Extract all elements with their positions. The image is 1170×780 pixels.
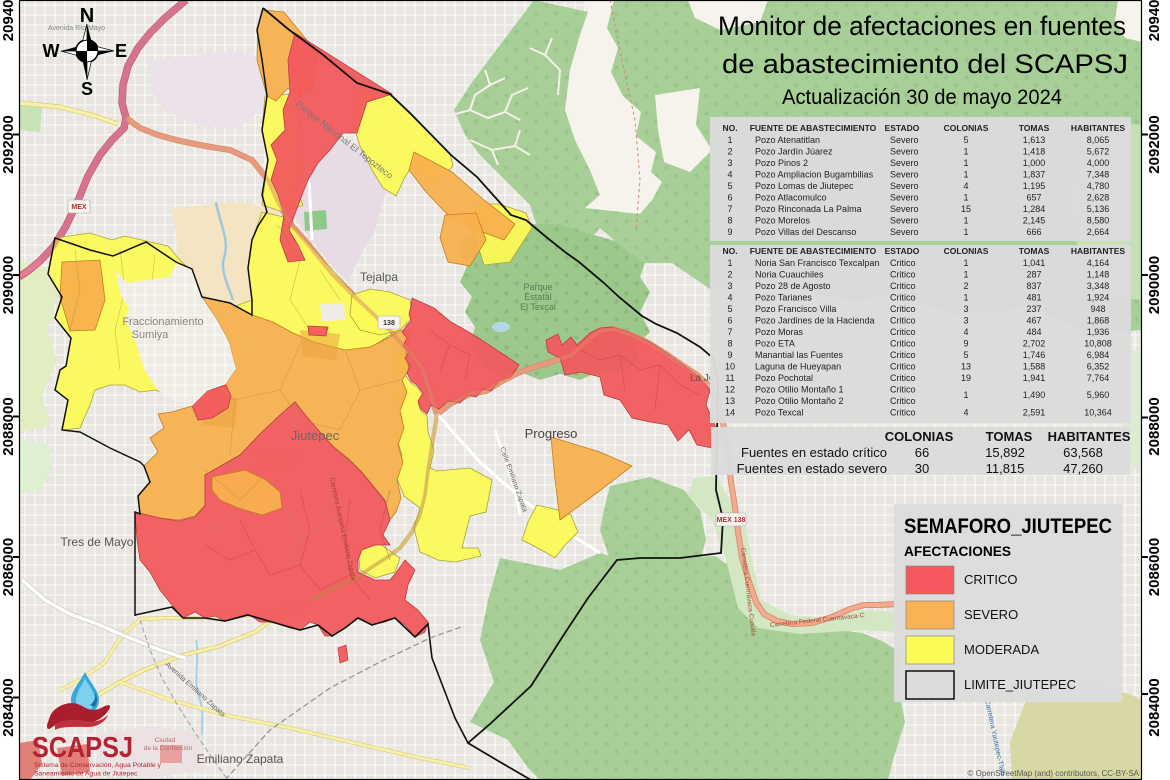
svg-text:2094000: 2094000 [1146,0,1163,41]
svg-text:657: 657 [1026,193,1041,203]
svg-text:Pozo ETA: Pozo ETA [755,339,795,349]
svg-text:Actualización 30 de mayo 2024: Actualización 30 de mayo 2024 [782,86,1062,109]
svg-text:COLONIAS: COLONIAS [944,123,989,133]
svg-text:Pozo Jardín Júarez: Pozo Jardín Júarez [755,147,833,157]
svg-text:4,164: 4,164 [1087,258,1110,268]
svg-text:Parque: Parque [523,282,552,292]
svg-text:Tejalpa: Tejalpa [360,270,398,284]
svg-text:ESTADO: ESTADO [885,123,920,133]
svg-text:2,591: 2,591 [1023,408,1046,418]
svg-text:FUENTE DE ABASTECIMIENTO: FUENTE DE ABASTECIMIENTO [750,246,877,256]
svg-text:1,490: 1,490 [1023,390,1046,400]
svg-text:2,628: 2,628 [1087,193,1110,203]
svg-text:1,837: 1,837 [1023,170,1046,180]
svg-text:COLONIAS: COLONIAS [944,246,989,256]
svg-text:CRITICO: CRITICO [964,572,1017,587]
svg-text:Progreso: Progreso [525,426,578,441]
svg-text:2086000: 2086000 [1146,538,1163,596]
svg-text:W: W [43,41,60,61]
svg-text:Critico: Critico [890,281,916,291]
svg-text:Critico: Critico [890,258,916,268]
svg-text:Sistema de Conservación, Agua: Sistema de Conservación, Agua Potable y [34,762,162,769]
svg-text:Pozo Rinconada La Palma: Pozo Rinconada La Palma [755,204,862,214]
svg-text:2: 2 [963,281,968,291]
svg-text:de la Confección: de la Confección [144,745,193,752]
svg-text:15,892: 15,892 [985,445,1025,460]
svg-text:5: 5 [727,304,732,314]
svg-text:Critico: Critico [890,316,916,326]
svg-text:Pozo Francisco Villa: Pozo Francisco Villa [755,304,836,314]
svg-text:837: 837 [1026,281,1041,291]
svg-text:948: 948 [1090,304,1105,314]
svg-text:Pozo Texcal: Pozo Texcal [755,408,803,418]
svg-text:2,702: 2,702 [1023,339,1046,349]
svg-text:COLONIAS: COLONIAS [885,429,954,444]
svg-text:Critico: Critico [890,350,916,360]
svg-text:4,780: 4,780 [1087,181,1110,191]
svg-text:237: 237 [1026,304,1041,314]
svg-text:MODERADA: MODERADA [964,642,1039,657]
svg-text:1: 1 [963,258,968,268]
svg-text:Critico: Critico [890,293,916,303]
svg-text:Severo: Severo [890,170,919,180]
svg-text:Severo: Severo [890,216,919,226]
svg-text:MEX 138: MEX 138 [717,517,746,524]
svg-text:Pozo Otilio Montaño 2: Pozo Otilio Montaño 2 [755,396,844,406]
svg-text:Sumiya: Sumiya [132,329,170,341]
svg-text:4: 4 [963,408,968,418]
svg-text:2084000: 2084000 [0,678,17,736]
svg-text:NO.: NO. [722,123,737,133]
svg-text:6,352: 6,352 [1087,362,1110,372]
svg-text:12: 12 [725,385,735,395]
svg-text:S: S [81,79,93,99]
svg-text:484: 484 [1026,327,1041,337]
svg-text:AFECTACIONES: AFECTACIONES [904,544,1011,559]
svg-text:MEX: MEX [71,204,87,211]
svg-text:1: 1 [963,158,968,168]
svg-text:Estatal: Estatal [524,292,552,302]
svg-text:HABITANTES: HABITANTES [1071,246,1125,256]
svg-text:8,580: 8,580 [1087,216,1110,226]
svg-text:Avenida Río Mayo: Avenida Río Mayo [48,25,105,32]
svg-text:Severo: Severo [890,158,919,168]
svg-text:287: 287 [1026,270,1041,280]
svg-text:3: 3 [963,316,968,326]
svg-text:47,260: 47,260 [1063,461,1103,476]
svg-text:Ciudad: Ciudad [155,737,176,744]
svg-text:2: 2 [727,147,732,157]
svg-text:2,145: 2,145 [1023,216,1046,226]
svg-text:5,136: 5,136 [1087,204,1110,214]
svg-text:13: 13 [961,362,971,372]
svg-text:HABITANTES: HABITANTES [1048,429,1131,444]
svg-text:Manantial las Fuentes: Manantial las Fuentes [755,350,844,360]
svg-text:Severo: Severo [890,193,919,203]
svg-text:63,568: 63,568 [1063,445,1103,460]
svg-text:1,936: 1,936 [1087,327,1110,337]
svg-text:10,808: 10,808 [1084,339,1112,349]
svg-text:5: 5 [963,135,968,145]
svg-text:1: 1 [963,170,968,180]
svg-text:Critico: Critico [890,385,916,395]
svg-text:1: 1 [963,216,968,226]
svg-text:7,764: 7,764 [1087,373,1110,383]
svg-text:10,364: 10,364 [1084,408,1112,418]
svg-text:Pozo Pinos 2: Pozo Pinos 2 [755,158,808,168]
svg-text:8: 8 [727,339,732,349]
svg-text:2094000: 2094000 [0,0,17,41]
svg-text:2092000: 2092000 [0,115,17,173]
svg-text:6,984: 6,984 [1087,350,1110,360]
svg-text:4,000: 4,000 [1087,158,1110,168]
svg-text:El Texcal: El Texcal [520,302,556,312]
svg-text:5: 5 [963,350,968,360]
svg-text:Monitor de afectaciones en fue: Monitor de afectaciones en fuentes [718,11,1126,41]
svg-text:3: 3 [963,304,968,314]
svg-text:Severo: Severo [890,227,919,237]
svg-text:Critico: Critico [890,362,916,372]
svg-text:138: 138 [383,320,395,327]
svg-text:3,348: 3,348 [1087,281,1110,291]
svg-text:1: 1 [963,270,968,280]
svg-text:3: 3 [727,281,732,291]
svg-text:Pozo Lomas de Jiutepec: Pozo Lomas de Jiutepec [755,181,854,191]
svg-text:Severo: Severo [890,147,919,157]
svg-text:FUENTE DE ABASTECIMIENTO: FUENTE DE ABASTECIMIENTO [750,123,877,133]
svg-text:4: 4 [963,327,968,337]
svg-text:E: E [115,41,127,61]
svg-text:ESTADO: ESTADO [885,246,920,256]
svg-text:Saneamiento de Agua de Jiutepe: Saneamiento de Agua de Jiutepec [34,771,138,778]
svg-text:1: 1 [963,293,968,303]
svg-text:Pozo Ampliacion Bugambilias: Pozo Ampliacion Bugambilias [755,170,874,180]
svg-text:Pozo Atenatitlan: Pozo Atenatitlan [755,135,820,145]
svg-text:1,746: 1,746 [1023,350,1046,360]
svg-text:2086000: 2086000 [0,538,17,596]
svg-text:de abastecimiento del SCAPSJ: de abastecimiento del SCAPSJ [722,49,1128,79]
svg-text:Pozo Morelos: Pozo Morelos [755,216,811,226]
svg-text:Jiutepec: Jiutepec [291,428,340,443]
svg-text:66: 66 [915,445,929,460]
svg-text:NO.: NO. [722,246,737,256]
svg-text:666: 666 [1026,227,1041,237]
svg-text:Critico: Critico [890,327,916,337]
svg-text:Noria Cuauchiles: Noria Cuauchiles [755,270,824,280]
svg-text:9: 9 [727,227,732,237]
svg-text:1,588: 1,588 [1023,362,1046,372]
svg-text:11,815: 11,815 [986,461,1025,476]
svg-text:9: 9 [963,339,968,349]
svg-text:5: 5 [727,181,732,191]
svg-text:Tres de Mayo: Tres de Mayo [61,535,134,549]
svg-text:1,148: 1,148 [1087,270,1110,280]
svg-text:Pozo Moras: Pozo Moras [755,327,804,337]
svg-text:1: 1 [727,135,732,145]
svg-text:7,348: 7,348 [1087,170,1110,180]
svg-text:Pozo Jardines de la Hacienda: Pozo Jardines de la Hacienda [755,316,875,326]
svg-text:Pozo Atlacomulco: Pozo Atlacomulco [755,193,827,203]
svg-text:14: 14 [725,408,735,418]
svg-text:19: 19 [961,373,971,383]
svg-text:1,000: 1,000 [1023,158,1046,168]
svg-text:Severo: Severo [890,204,919,214]
svg-text:6: 6 [727,193,732,203]
svg-text:2092000: 2092000 [1146,115,1163,173]
svg-text:7: 7 [727,327,732,337]
svg-text:LIMITE_JIUTEPEC: LIMITE_JIUTEPEC [964,677,1076,692]
svg-text:5,960: 5,960 [1087,390,1110,400]
svg-text:1,941: 1,941 [1023,373,1046,383]
svg-text:7: 7 [727,204,732,214]
svg-text:Laguna de Hueyapan: Laguna de Hueyapan [755,362,841,372]
svg-text:Pozo 28 de Agosto: Pozo 28 de Agosto [755,281,831,291]
svg-text:SEVERO: SEVERO [964,607,1018,622]
svg-text:SEMAFORO_JIUTEPEC: SEMAFORO_JIUTEPEC [904,515,1112,538]
svg-text:4: 4 [727,170,732,180]
svg-text:1: 1 [963,390,968,400]
svg-text:481: 481 [1026,293,1041,303]
svg-text:SCAPSJ: SCAPSJ [32,732,133,764]
svg-text:© OpenStreetMap (and) contribu: © OpenStreetMap (and) contributors, CC-B… [968,769,1140,778]
svg-text:10: 10 [725,362,735,372]
svg-text:Critico: Critico [890,396,916,406]
svg-text:Fuentes en estado crítico: Fuentes en estado crítico [741,445,887,460]
svg-text:Critico: Critico [890,304,916,314]
svg-text:1: 1 [963,227,968,237]
svg-text:Pozo Pochotal: Pozo Pochotal [755,373,813,383]
svg-text:N: N [80,5,94,27]
svg-text:Fuentes en estado severo: Fuentes en estado severo [737,461,887,476]
svg-text:Emiliano Zapata: Emiliano Zapata [197,752,284,766]
svg-text:2088000: 2088000 [1146,397,1163,455]
svg-text:2090000: 2090000 [1146,256,1163,314]
svg-text:Noria San Francisco Texcalpan: Noria San Francisco Texcalpan [755,258,879,268]
svg-text:1,284: 1,284 [1023,204,1046,214]
svg-text:1,195: 1,195 [1023,181,1046,191]
svg-text:Critico: Critico [890,408,916,418]
svg-text:1,613: 1,613 [1023,135,1046,145]
svg-text:1: 1 [727,258,732,268]
svg-text:9: 9 [727,350,732,360]
svg-text:2: 2 [727,270,732,280]
svg-text:Pozo Tarianes: Pozo Tarianes [755,293,812,303]
svg-text:2084000: 2084000 [1146,678,1163,736]
svg-text:Fraccionamiento: Fraccionamiento [122,316,203,328]
svg-text:5,672: 5,672 [1087,147,1110,157]
svg-text:TOMAS: TOMAS [1019,246,1050,256]
svg-text:30: 30 [915,461,929,476]
svg-text:13: 13 [725,396,735,406]
svg-text:Critico: Critico [890,270,916,280]
svg-text:2088000: 2088000 [0,397,17,455]
svg-text:2090000: 2090000 [0,256,17,314]
svg-text:Severo: Severo [890,181,919,191]
svg-text:1,924: 1,924 [1087,293,1110,303]
svg-text:4: 4 [963,181,968,191]
svg-text:467: 467 [1026,316,1041,326]
svg-text:Pozo Otilio Montaño 1: Pozo Otilio Montaño 1 [755,385,844,395]
svg-text:11: 11 [725,373,734,383]
svg-text:HABITANTES: HABITANTES [1071,123,1125,133]
svg-text:Critico: Critico [890,339,916,349]
svg-text:8,065: 8,065 [1087,135,1110,145]
svg-text:TOMAS: TOMAS [986,429,1033,444]
svg-text:8: 8 [727,216,732,226]
svg-text:1: 1 [963,147,968,157]
svg-text:4: 4 [727,293,732,303]
svg-text:TOMAS: TOMAS [1019,123,1050,133]
svg-text:1: 1 [963,193,968,203]
svg-text:Critico: Critico [890,373,916,383]
svg-text:Pozo Villas del Descanso: Pozo Villas del Descanso [755,227,856,237]
svg-text:1,868: 1,868 [1087,316,1110,326]
svg-text:15: 15 [961,204,971,214]
svg-text:2,664: 2,664 [1087,227,1110,237]
svg-text:1,418: 1,418 [1023,147,1046,157]
svg-text:3: 3 [727,158,732,168]
svg-text:6: 6 [727,316,732,326]
svg-text:Severo: Severo [890,135,919,145]
svg-text:1,041: 1,041 [1023,258,1046,268]
